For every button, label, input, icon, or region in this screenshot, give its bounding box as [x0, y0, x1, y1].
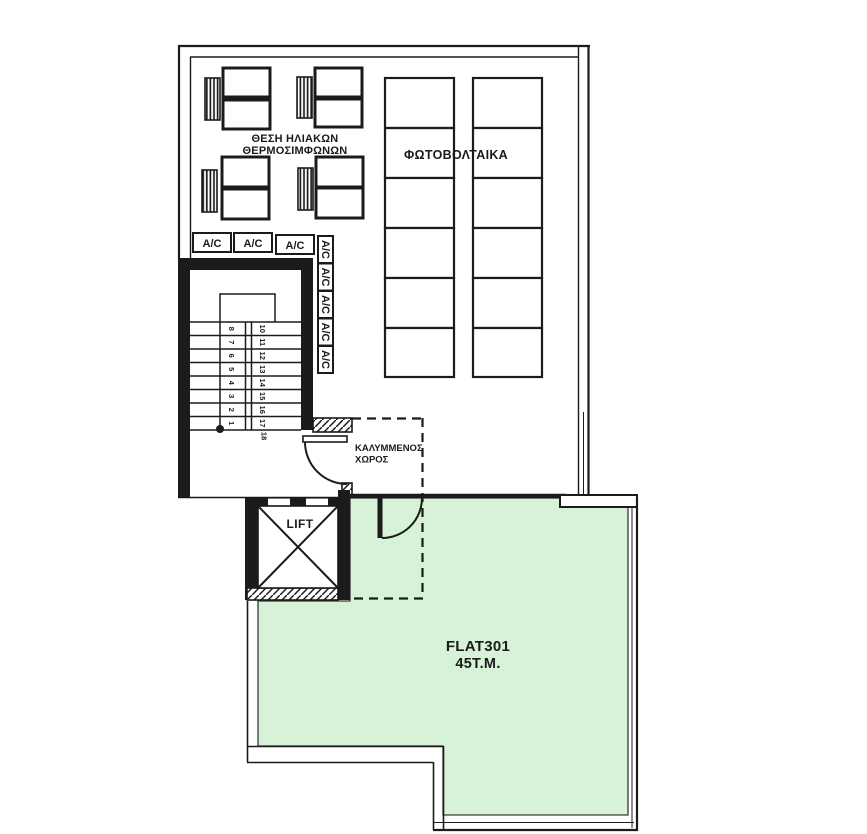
svg-text:11: 11 — [258, 338, 267, 346]
svg-text:1: 1 — [227, 421, 236, 425]
solar-heaters-area: ΘΕΣΗ ΗΛΙΑΚΩΝ ΘΕΡΜΟΣΙΜΦΩΝΩΝ — [202, 68, 363, 219]
lift-door-stub — [290, 498, 306, 506]
svg-text:7: 7 — [227, 340, 236, 344]
door-jamb-wall — [313, 418, 352, 432]
stair-wall-top — [178, 258, 313, 270]
lift-wall-bottom — [247, 588, 338, 600]
solar-heater-unit — [297, 68, 362, 127]
ac-unit-label: A/C — [286, 240, 305, 252]
covered-space-label-line2: ΧΩΡΟΣ — [355, 455, 389, 466]
svg-text:2: 2 — [227, 408, 236, 412]
solar-heater-unit — [202, 157, 269, 219]
ac-unit-label: A/C — [203, 238, 222, 250]
terrace-right-railing — [632, 498, 637, 831]
pv-area-label: ΦΩΤΟΒΟΛΤΑΙΚΑ — [404, 148, 508, 162]
stair-start-dot — [216, 425, 224, 433]
stair-treads — [190, 322, 301, 430]
flat-area-label: 45T.M. — [455, 656, 500, 672]
svg-text:16: 16 — [258, 406, 267, 414]
stair-wall-right — [301, 258, 313, 430]
solar-area-label-line2: ΘΕΡΜΟΣΙΜΦΩΝΩΝ — [243, 145, 348, 157]
ac-unit-label: A/C — [319, 350, 331, 369]
svg-text:12: 12 — [258, 352, 267, 360]
lift-label: LIFT — [287, 517, 314, 531]
ac-unit-label: A/C — [244, 238, 263, 250]
stair-wall-left — [178, 258, 190, 498]
terrace-bottom-railing — [433, 823, 638, 831]
roof-floor-plan: ΘΕΣΗ ΗΛΙΑΚΩΝ ΘΕΡΜΟΣΙΜΦΩΝΩΝ ΦΩΤΟΒΟΛΤΑΙΚΑ … — [0, 0, 867, 834]
svg-text:15: 15 — [258, 392, 267, 400]
ac-unit-label: A/C — [319, 268, 331, 287]
pv-panel-column-left — [385, 78, 454, 377]
solar-area-label-line1: ΘΕΣΗ ΗΛΙΑΚΩΝ — [252, 133, 339, 145]
ac-unit-label: A/C — [319, 323, 331, 342]
svg-text:8: 8 — [227, 327, 236, 331]
svg-text:4: 4 — [227, 381, 236, 386]
lift-door-stub — [328, 498, 338, 506]
svg-text:5: 5 — [227, 367, 236, 371]
door-leaf — [303, 436, 347, 442]
svg-text:13: 13 — [258, 365, 267, 373]
svg-text:10: 10 — [258, 325, 267, 333]
svg-text:6: 6 — [227, 354, 236, 358]
lift-wall-left — [245, 498, 258, 600]
covered-space-label-line1: ΚΑΛΥΜΜΕΝΟΣ — [355, 443, 423, 454]
ac-unit-label: A/C — [319, 240, 331, 259]
terrace-topright-wall — [560, 495, 637, 507]
svg-text:14: 14 — [258, 379, 267, 388]
photovoltaic-area: ΦΩΤΟΒΟΛΤΑΙΚΑ — [385, 78, 542, 377]
svg-text:3: 3 — [227, 394, 236, 398]
pv-panel-column-right — [473, 78, 542, 377]
solar-heater-unit — [298, 157, 363, 218]
door-swing-arc — [305, 442, 347, 484]
lift-wall-right — [338, 490, 350, 600]
door-leaf — [378, 498, 383, 538]
stair-step-numbers: 1 2 3 4 5 6 7 8 10 11 12 13 14 15 16 17 … — [227, 325, 268, 441]
flat-name-label: FLAT301 — [446, 638, 510, 655]
ac-units-row: A/C A/C A/C — [193, 233, 314, 254]
lift-shaft: LIFT — [245, 490, 350, 600]
floor-plan-drawing: ΘΕΣΗ ΗΛΙΑΚΩΝ ΘΕΡΜΟΣΙΜΦΩΝΩΝ ΦΩΤΟΒΟΛΤΑΙΚΑ … — [0, 0, 867, 834]
stair-entrance-door — [303, 436, 347, 484]
lift-door-stub — [258, 498, 268, 506]
ac-units-column: A/C A/C A/C A/C A/C — [318, 236, 333, 373]
svg-text:18: 18 — [260, 432, 269, 440]
solar-heater-unit — [205, 68, 270, 129]
svg-text:17: 17 — [258, 419, 267, 427]
ac-unit-label: A/C — [319, 295, 331, 314]
